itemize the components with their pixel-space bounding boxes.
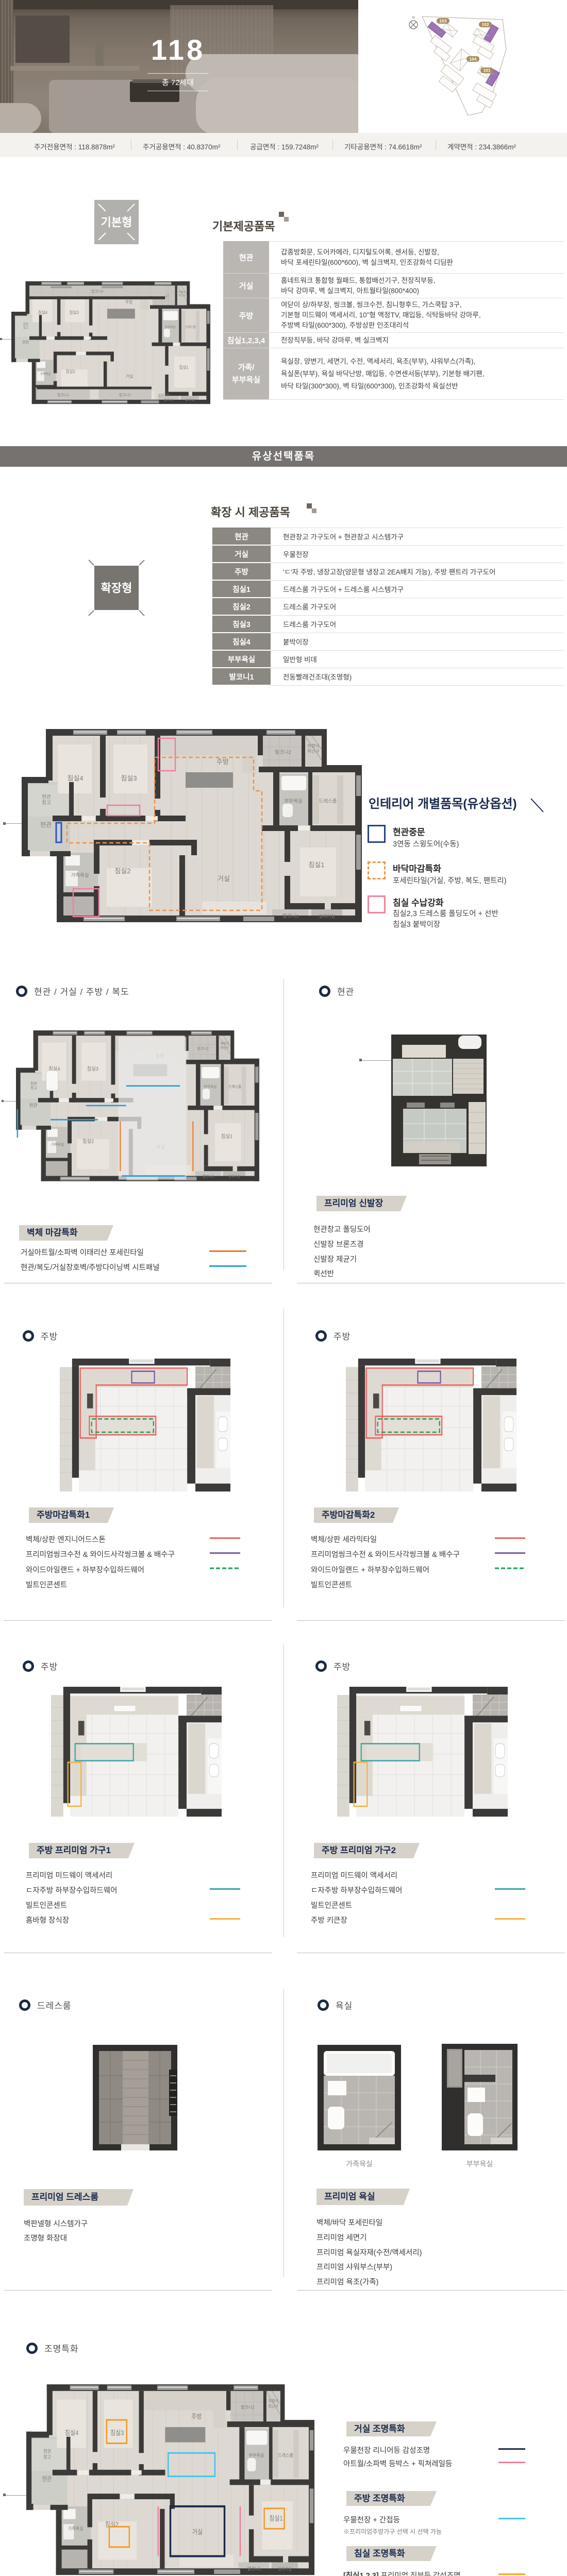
svg-text:발코니1: 발코니1 (57, 393, 69, 397)
svg-text:실외기실: 실외기실 (158, 393, 169, 397)
svg-text:101: 101 (483, 68, 490, 73)
svg-text:103: 103 (439, 19, 446, 24)
svg-text:102: 102 (481, 22, 489, 27)
svg-text:N: N (412, 16, 414, 20)
svg-text:발코니2: 발코니2 (119, 393, 131, 397)
svg-text:기본형: 기본형 (101, 216, 132, 229)
svg-text:발코니4: 발코니4 (91, 289, 103, 294)
svg-text:104: 104 (469, 57, 476, 62)
svg-text:확장형: 확장형 (101, 582, 132, 595)
